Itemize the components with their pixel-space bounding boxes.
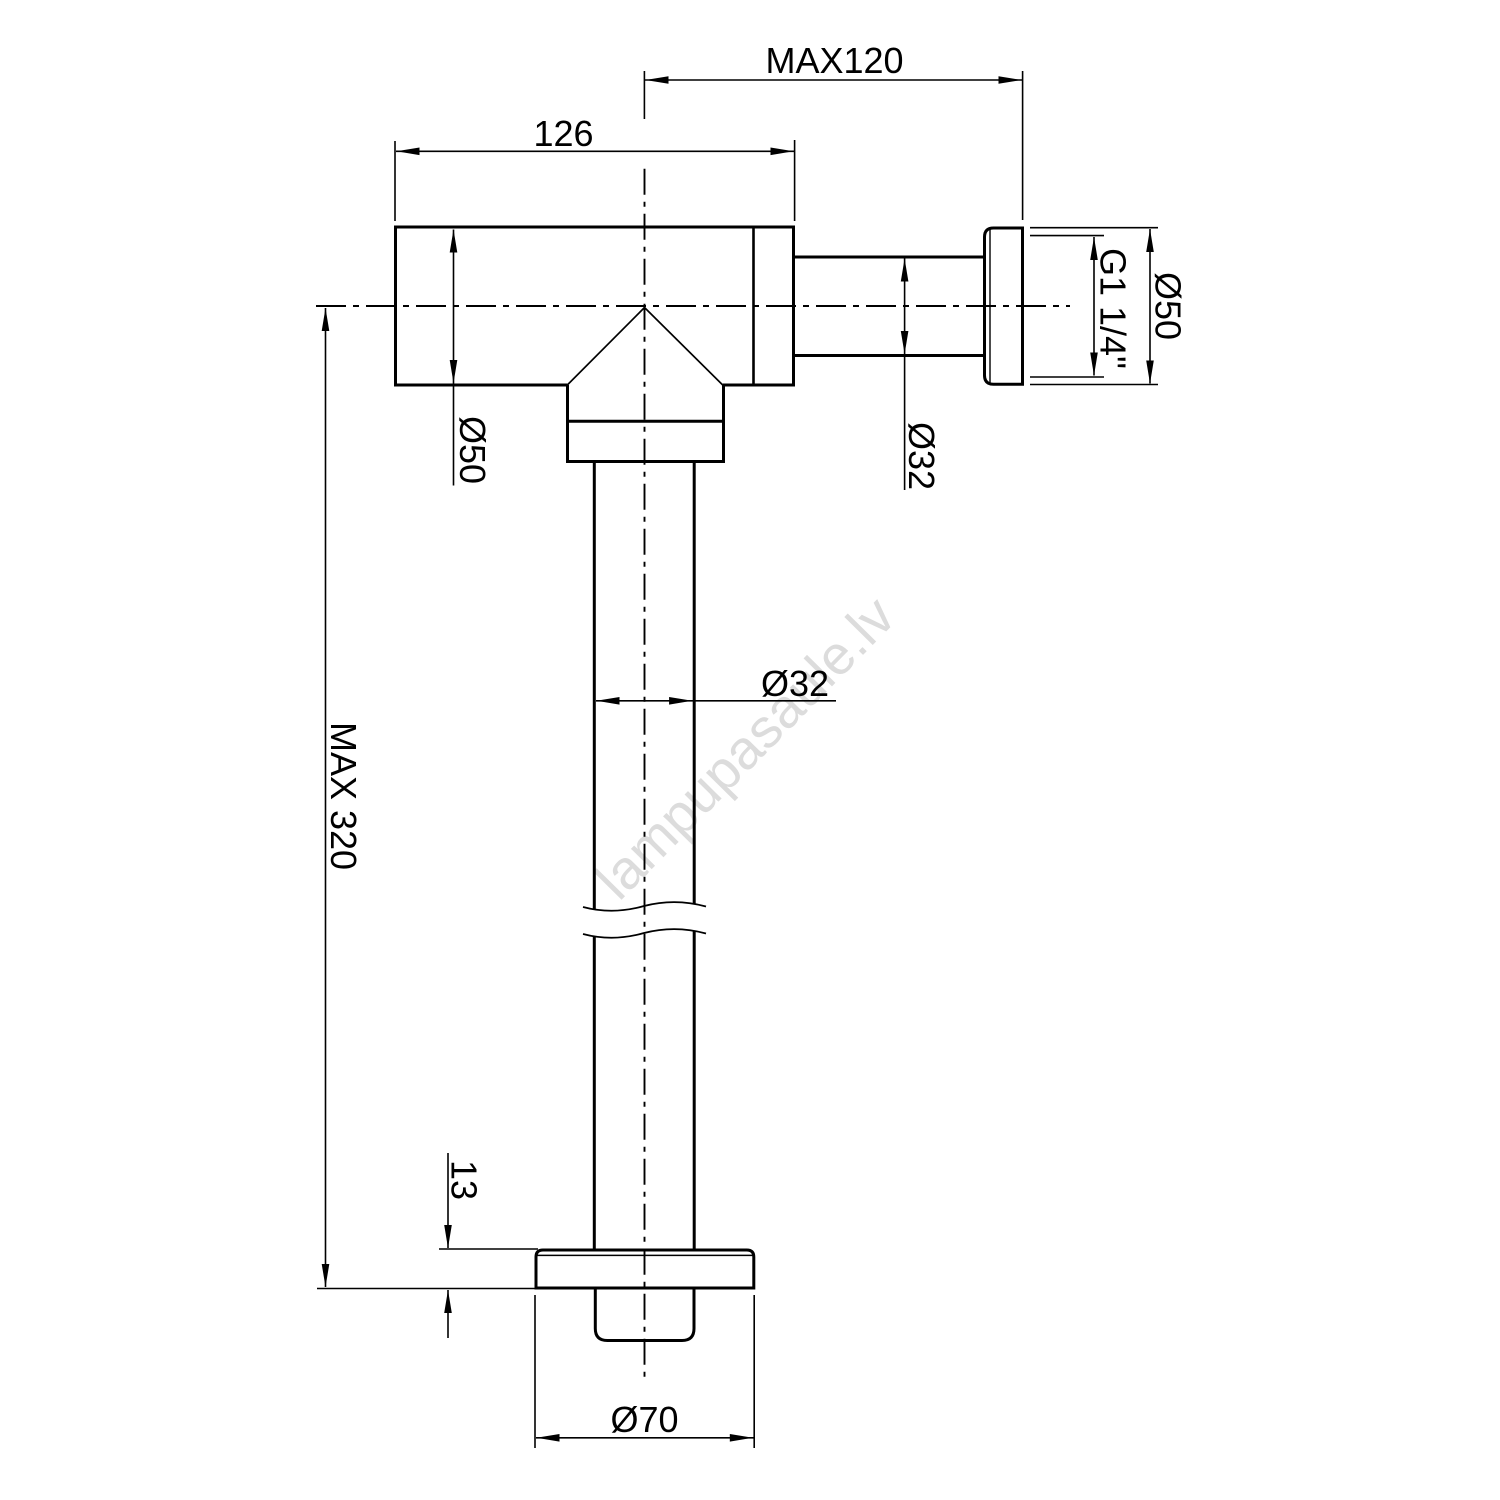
svg-text:Ø70: Ø70 — [610, 1399, 678, 1440]
svg-text:Ø32: Ø32 — [761, 663, 829, 704]
svg-text:MAX120: MAX120 — [765, 40, 903, 81]
svg-text:Ø50: Ø50 — [452, 416, 493, 484]
svg-text:MAX 320: MAX 320 — [323, 722, 364, 870]
svg-text:Ø32: Ø32 — [901, 422, 942, 490]
svg-text:13: 13 — [444, 1160, 485, 1200]
svg-text:G1 1/4": G1 1/4" — [1093, 248, 1134, 369]
svg-text:Ø50: Ø50 — [1148, 272, 1189, 340]
svg-text:126: 126 — [533, 113, 593, 154]
